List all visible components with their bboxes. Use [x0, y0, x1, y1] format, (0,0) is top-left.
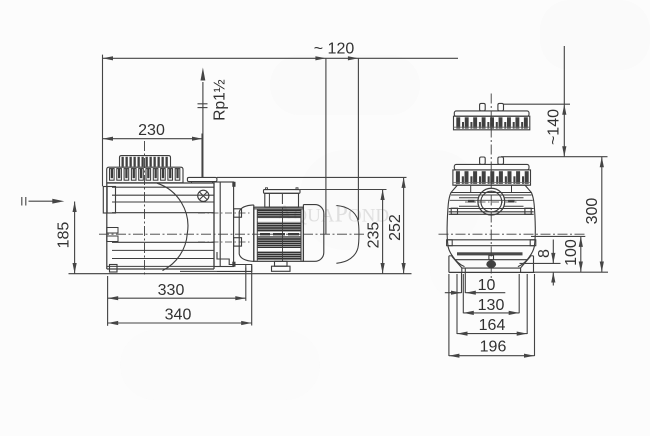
svg-text:8: 8 [536, 249, 553, 258]
svg-text:340: 340 [165, 307, 192, 324]
svg-text:~140: ~140 [546, 109, 563, 145]
svg-text:252: 252 [387, 214, 404, 241]
svg-text:164: 164 [479, 317, 506, 334]
svg-text:230: 230 [138, 122, 165, 139]
svg-text:100: 100 [563, 239, 580, 266]
svg-text:Rp1½: Rp1½ [212, 79, 229, 120]
svg-text:235: 235 [366, 222, 383, 249]
svg-text:10: 10 [478, 277, 496, 294]
svg-text:330: 330 [158, 282, 185, 299]
svg-text:185: 185 [56, 222, 73, 249]
svg-text:196: 196 [480, 339, 507, 356]
svg-text:130: 130 [478, 297, 505, 314]
svg-text:300: 300 [584, 198, 601, 225]
svg-text:~ 120: ~ 120 [314, 41, 355, 58]
